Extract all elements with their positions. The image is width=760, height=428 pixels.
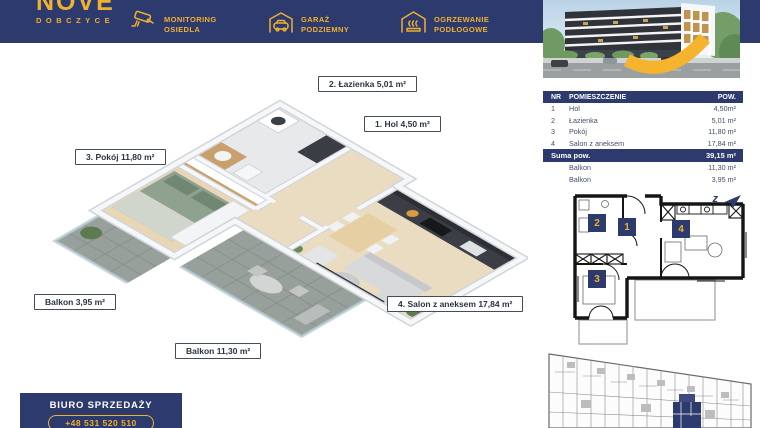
label-balkon-maly: Balkon 3,95 m² [34, 294, 116, 310]
label-pokoj: 3. Pokój 11,80 m² [75, 149, 166, 165]
schematic-floorplan: 2 1 4 3 z [565, 192, 755, 350]
feature-monitoring-label: MONITORING OSIEDLA [164, 15, 217, 34]
area-table: NR POMIESZCZENIE POW. 1 Hol 4,50m² 2 Łaz… [543, 91, 743, 185]
label-balkon-duzy: Balkon 11,30 m² [175, 343, 261, 359]
building-siteplan [545, 352, 757, 428]
table-header-row: NR POMIESZCZENIE POW. [543, 91, 743, 103]
summary-label: Suma pow. [543, 151, 691, 160]
highlighted-unit [673, 402, 701, 428]
col-area: POW. [691, 94, 743, 101]
room-badge-3: 3 [588, 270, 606, 288]
summary-area: 39,15 m² [691, 151, 743, 160]
feature-heating: OGRZEWANIE PODŁOGOWE [400, 9, 489, 40]
label-salon: 4. Salon z aneksem 17,84 m² [387, 296, 523, 312]
feature-garage-label: GARAŻ PODZIEMNY [301, 15, 349, 34]
room-badge-2: 2 [588, 214, 606, 232]
compass: z [713, 194, 744, 215]
isometric-floorplan-render [28, 48, 528, 393]
room-badge-4: 4 [672, 220, 690, 238]
compass-letter: z [713, 194, 719, 204]
table-extra-row: Balkon 11,30 m² [543, 162, 743, 174]
table-row: 1 Hol 4,50m² [543, 103, 743, 115]
highlighted-unit-upper [679, 394, 695, 402]
cctv-camera-icon [130, 9, 157, 40]
label-hol: 1. Hol 4,50 m² [364, 116, 441, 132]
col-nr: NR [543, 94, 569, 101]
col-room: POMIESZCZENIE [569, 94, 691, 101]
garage-car-icon [268, 9, 294, 40]
room-badge-1: 1 [618, 218, 636, 236]
flyer-page: NOVE DOBCZYCE MONITORING OSIEDLA [0, 0, 760, 428]
building-photo [543, 0, 740, 78]
table-row: 3 Pokój 11,80 m² [543, 126, 743, 138]
feature-heating-label: OGRZEWANIE PODŁOGOWE [434, 15, 489, 34]
north-arrow-icon [719, 194, 743, 215]
sales-office-title: BIURO SPRZEDAŻY [20, 400, 182, 411]
sales-phone-button[interactable]: +48 531 520 510 [48, 415, 154, 428]
brand-name: NOVE [36, 0, 108, 15]
brand-logo: NOVE DOBCZYCE [36, 0, 108, 25]
label-lazienka: 2. Łazienka 5,01 m² [318, 76, 417, 92]
table-row: 4 Salon z aneksem 17,84 m² [543, 138, 743, 150]
sales-office-box: BIURO SPRZEDAŻY +48 531 520 510 [20, 393, 182, 428]
brand-city: DOBCZYCE [36, 16, 108, 25]
table-summary-row: Suma pow. 39,15 m² [543, 149, 743, 162]
feature-garage: GARAŻ PODZIEMNY [268, 9, 349, 40]
underfloor-heating-icon [400, 9, 427, 40]
table-extra-row: Balkon 3,95 m² [543, 174, 743, 186]
table-row: 2 Łazienka 5,01 m² [543, 115, 743, 127]
feature-monitoring: MONITORING OSIEDLA [130, 9, 217, 40]
